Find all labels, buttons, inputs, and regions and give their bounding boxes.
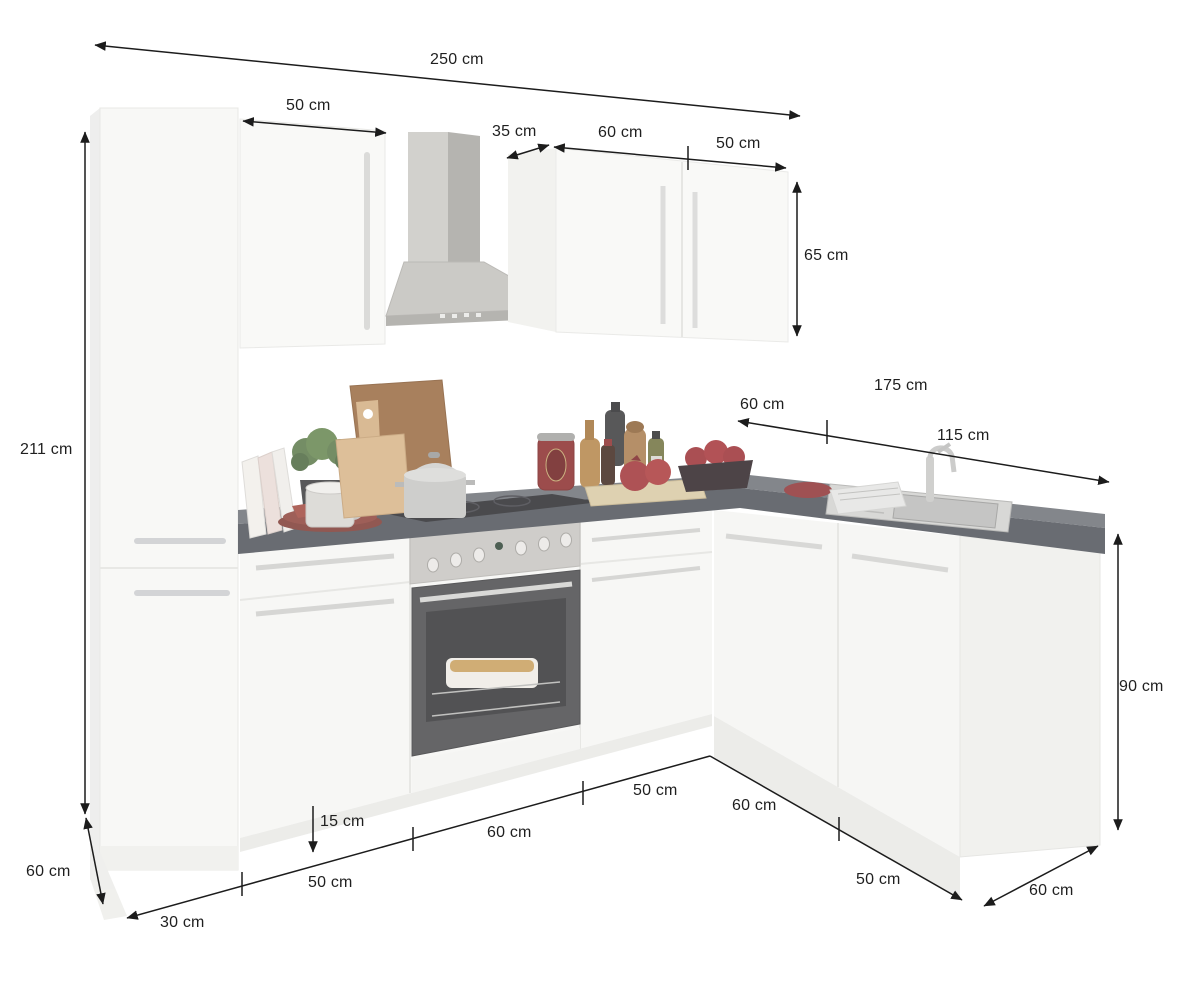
dim-label-front-seg-5: 60 cm <box>732 796 777 816</box>
oven-knob <box>539 537 550 551</box>
dim-label-wall-depth: 35 cm <box>492 122 537 142</box>
dim-label-wall-height: 65 cm <box>804 246 849 266</box>
oil-bottle <box>580 438 600 488</box>
dim-label-wall-door-60: 60 cm <box>598 123 643 143</box>
dim-label-tall-height: 211 cm <box>20 440 72 460</box>
dim-line-right-run <box>738 421 1109 482</box>
dim-label-total-width: 250 cm <box>430 50 484 70</box>
dim-label-wall-door-50: 50 cm <box>716 134 761 154</box>
kitchen-dimension-diagram: 250 cm 50 cm 35 cm 60 cm 50 cm 65 cm 211… <box>0 0 1200 1004</box>
tall-cabinet <box>90 108 238 920</box>
tall-cabinet-handle-top <box>134 538 226 544</box>
dim-label-front-seg-4: 50 cm <box>633 781 678 801</box>
sink-area <box>784 444 1012 532</box>
wall-cabinet-left <box>240 119 385 348</box>
end-panel <box>960 536 1100 857</box>
oven-knob <box>428 558 439 572</box>
pomegranate <box>645 459 671 485</box>
dim-label-front-seg-1: 30 cm <box>160 913 205 933</box>
dim-label-right-corner: 60 cm <box>740 395 785 415</box>
wall-cabinet-right <box>508 148 788 342</box>
dim-label-wall-left-width: 50 cm <box>286 96 331 116</box>
oven-knob <box>516 541 527 555</box>
tall-cabinet-handle-bottom <box>134 590 230 596</box>
kitchen-photo <box>90 108 1105 920</box>
dim-label-left-depth: 60 cm <box>26 862 71 882</box>
dim-label-right-depth: 60 cm <box>1029 881 1074 901</box>
pomegranate <box>620 461 650 491</box>
dim-label-front-seg-3: 60 cm <box>487 823 532 843</box>
dim-label-front-seg-6: 50 cm <box>856 870 901 890</box>
cutting-board-light <box>336 434 410 518</box>
dim-label-front-seg-2: 50 cm <box>308 873 353 893</box>
oven-brand-logo <box>495 542 503 550</box>
dim-label-plinth-height: 15 cm <box>320 812 365 832</box>
oven-knob <box>474 548 485 562</box>
faucet <box>926 456 934 502</box>
dim-label-base-height: 90 cm <box>1119 677 1164 697</box>
oven-knob <box>451 553 462 567</box>
red-dish <box>784 482 832 498</box>
wall-cabinet-left-handle <box>364 152 370 330</box>
dim-label-right-sink: 115 cm <box>937 426 989 446</box>
sauce-bottle <box>601 445 615 485</box>
oven-knob <box>561 533 572 547</box>
base-cabinets-right-run <box>714 510 1100 899</box>
dim-label-right-run: 175 cm <box>874 376 928 396</box>
kitchen-illustration <box>0 0 1200 1004</box>
